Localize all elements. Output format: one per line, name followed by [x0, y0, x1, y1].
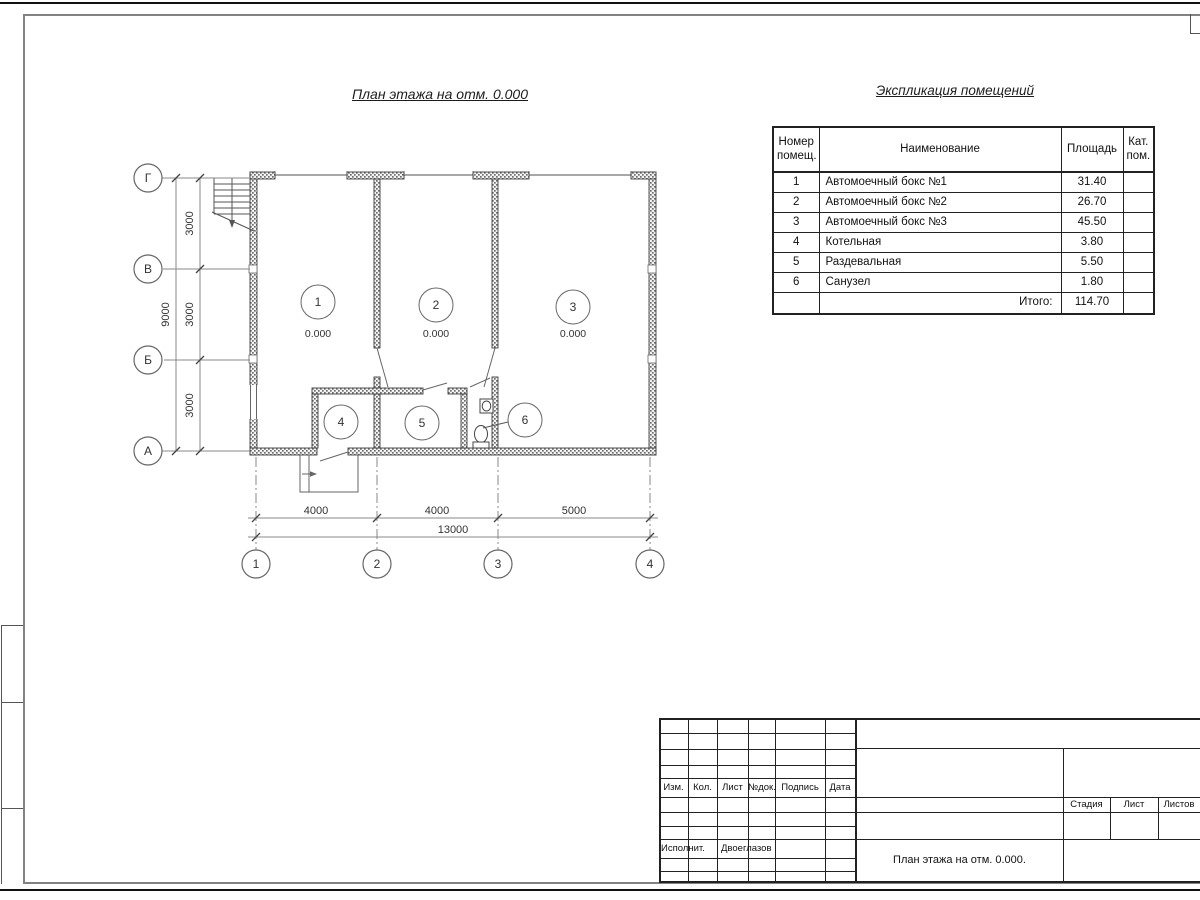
num-cell: [773, 293, 819, 314]
entrance-arrow: [310, 471, 317, 477]
rev-header-izm: Изм.: [659, 778, 688, 797]
cat-cell: [1123, 293, 1154, 314]
top-wall-segment: [473, 172, 529, 179]
cat-cell: [1123, 233, 1154, 253]
room-6-number: 6: [522, 413, 529, 427]
name-cell: Санузел: [819, 273, 1061, 293]
header-room-number: Номер помещ.: [773, 127, 819, 172]
partition-horizontal: [312, 388, 423, 394]
corner-stamp-box-left: [1190, 14, 1191, 33]
num-cell: 1: [773, 172, 819, 193]
name-cell: Автомоечный бокс №2: [819, 193, 1061, 213]
sheet-bottom-edge: [0, 889, 1200, 891]
cat-cell: [1123, 193, 1154, 213]
area-cell: 45.50: [1061, 213, 1123, 233]
filing-box-line: [1, 625, 23, 626]
room-1-elevation: 0.000: [305, 328, 331, 340]
floor-plan: 3000 3000 3000 9000 Г В Б А: [0, 0, 700, 600]
filing-box-line: [1, 808, 23, 809]
partition-horizontal-short: [448, 388, 467, 394]
rev-header-kol: Кол.: [688, 778, 717, 797]
room-markers: 1 0.000 2 0.000 3 0.000 4 5 6: [301, 285, 590, 440]
vertical-dimensions: 3000 3000 3000 9000: [160, 174, 250, 455]
dim-horizontal-total: 13000: [438, 524, 469, 536]
num-cell: 2: [773, 193, 819, 213]
room6-left-wall: [461, 394, 467, 448]
partition-1-2: [374, 179, 380, 348]
rev-header-data: Дата: [825, 778, 855, 797]
filing-box-left-edge: [1, 625, 2, 884]
dim-horizontal-1: 4000: [304, 505, 328, 517]
header-category: Кат. пом.: [1123, 127, 1154, 172]
dim-horizontal-2: 4000: [425, 505, 449, 517]
col-axis-1: 1: [253, 557, 260, 571]
num-cell: 5: [773, 253, 819, 273]
room-1-number: 1: [315, 295, 322, 309]
dim-horizontal-3: 5000: [562, 505, 586, 517]
sanitary-fixtures: [473, 399, 493, 448]
room-5-number: 5: [419, 416, 426, 430]
doc-title: План этажа на отм. 0.000.: [856, 839, 1063, 882]
row-axis-v: В: [144, 262, 152, 276]
dim-vertical-3: 3000: [184, 393, 196, 417]
bottom-wall-segment: [348, 448, 656, 455]
area-cell: 5.50: [1061, 253, 1123, 273]
row-axis-b: Б: [144, 353, 152, 367]
area-cell: 31.40: [1061, 172, 1123, 193]
top-wall-segment: [347, 172, 404, 179]
bottom-wall-segment: [250, 448, 317, 455]
dim-vertical-2: 3000: [184, 302, 196, 326]
corner-stamp-box-bottom: [1190, 33, 1200, 34]
room4-left-wall: [312, 394, 318, 448]
column-axis-markers: 1 2 3 4: [242, 550, 664, 578]
total-row: Итого: 114.70: [773, 293, 1154, 314]
top-wall-segment: [631, 172, 656, 179]
col-axis-4: 4: [647, 557, 654, 571]
row-axis-g: Г: [145, 171, 152, 185]
rev-header-list: Лист: [717, 778, 748, 797]
dim-vertical-1: 3000: [184, 211, 196, 235]
explication-table: Номер помещ. Наименование Площадь Кат. п…: [772, 126, 1155, 315]
table-row: 1 Автомоечный бокс №1 31.40: [773, 172, 1154, 193]
row-axis-a: А: [144, 444, 152, 458]
partition-2-3: [492, 179, 498, 348]
header-area: Площадь: [1061, 127, 1123, 172]
executor-label: Исполнит.: [661, 839, 717, 858]
explication-title: Экспликация помещений: [845, 82, 1065, 100]
room-2-number: 2: [433, 298, 440, 312]
room-3-elevation: 0.000: [560, 328, 586, 340]
sheet-label: Лист: [1110, 797, 1158, 812]
name-cell: Автомоечный бокс №1: [819, 172, 1061, 193]
name-cell: Автомоечный бокс №3: [819, 213, 1061, 233]
table-row: 2 Автомоечный бокс №2 26.70: [773, 193, 1154, 213]
stair-arrow: [229, 220, 235, 228]
cat-cell: [1123, 273, 1154, 293]
num-cell: 6: [773, 273, 819, 293]
rev-header-podpis: Подпись: [775, 778, 825, 797]
room-2-elevation: 0.000: [423, 328, 449, 340]
table-row: 6 Санузел 1.80: [773, 273, 1154, 293]
sheets-label: Листов: [1158, 797, 1200, 812]
drawing-sheet: План этажа на отм. 0.000 Экспликация пом…: [0, 0, 1200, 900]
cat-cell: [1123, 172, 1154, 193]
table-row: 4 Котельная 3.80: [773, 233, 1154, 253]
cat-cell: [1123, 253, 1154, 273]
rev-header-ndoc: №док.: [748, 778, 775, 797]
area-cell: 1.80: [1061, 273, 1123, 293]
dim-vertical-total: 9000: [160, 302, 172, 326]
top-wall-segment: [250, 172, 275, 179]
explication-title-text: Экспликация помещений: [876, 83, 1034, 98]
cat-cell: [1123, 213, 1154, 233]
col-axis-2: 2: [374, 557, 381, 571]
table-row: 5 Раздевальная 5.50: [773, 253, 1154, 273]
filing-box-line: [1, 702, 23, 703]
title-block: Изм. Кол. Лист №док. Подпись Дата Исполн…: [659, 718, 1200, 883]
explication-header-row: Номер помещ. Наименование Площадь Кат. п…: [773, 127, 1154, 172]
row-axis-markers: Г В Б А: [134, 164, 162, 465]
executor-name: Двоеглазов: [721, 839, 781, 858]
col-axis-3: 3: [495, 557, 502, 571]
entrance-porch: [300, 455, 358, 492]
staircase: [212, 178, 254, 231]
room-4-number: 4: [338, 415, 345, 429]
num-cell: 3: [773, 213, 819, 233]
total-value: 114.70: [1061, 293, 1123, 314]
toilet-icon: [475, 426, 488, 443]
name-cell: Раздевальная: [819, 253, 1061, 273]
area-cell: 26.70: [1061, 193, 1123, 213]
num-cell: 4: [773, 233, 819, 253]
gate-openings: [275, 171, 631, 179]
table-row: 3 Автомоечный бокс №3 45.50: [773, 213, 1154, 233]
room-3-number: 3: [570, 300, 577, 314]
stage-label: Стадия: [1063, 797, 1110, 812]
area-cell: 3.80: [1061, 233, 1123, 253]
door-swings: [320, 348, 495, 461]
header-name: Наименование: [819, 127, 1061, 172]
right-wall: [649, 172, 656, 455]
total-label: Итого:: [819, 293, 1061, 314]
name-cell: Котельная: [819, 233, 1061, 253]
